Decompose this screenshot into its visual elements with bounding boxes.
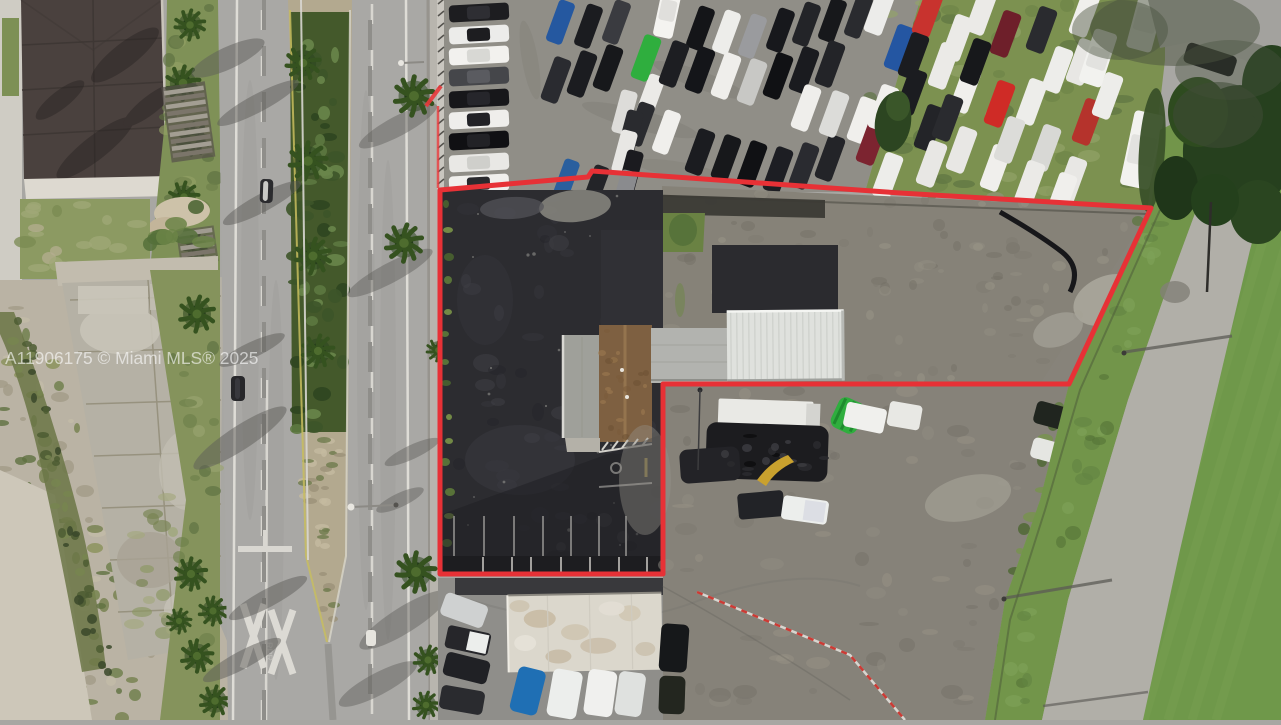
svg-text:A11906175 © Miami MLS® 2025: A11906175 © Miami MLS® 2025 xyxy=(5,348,258,368)
